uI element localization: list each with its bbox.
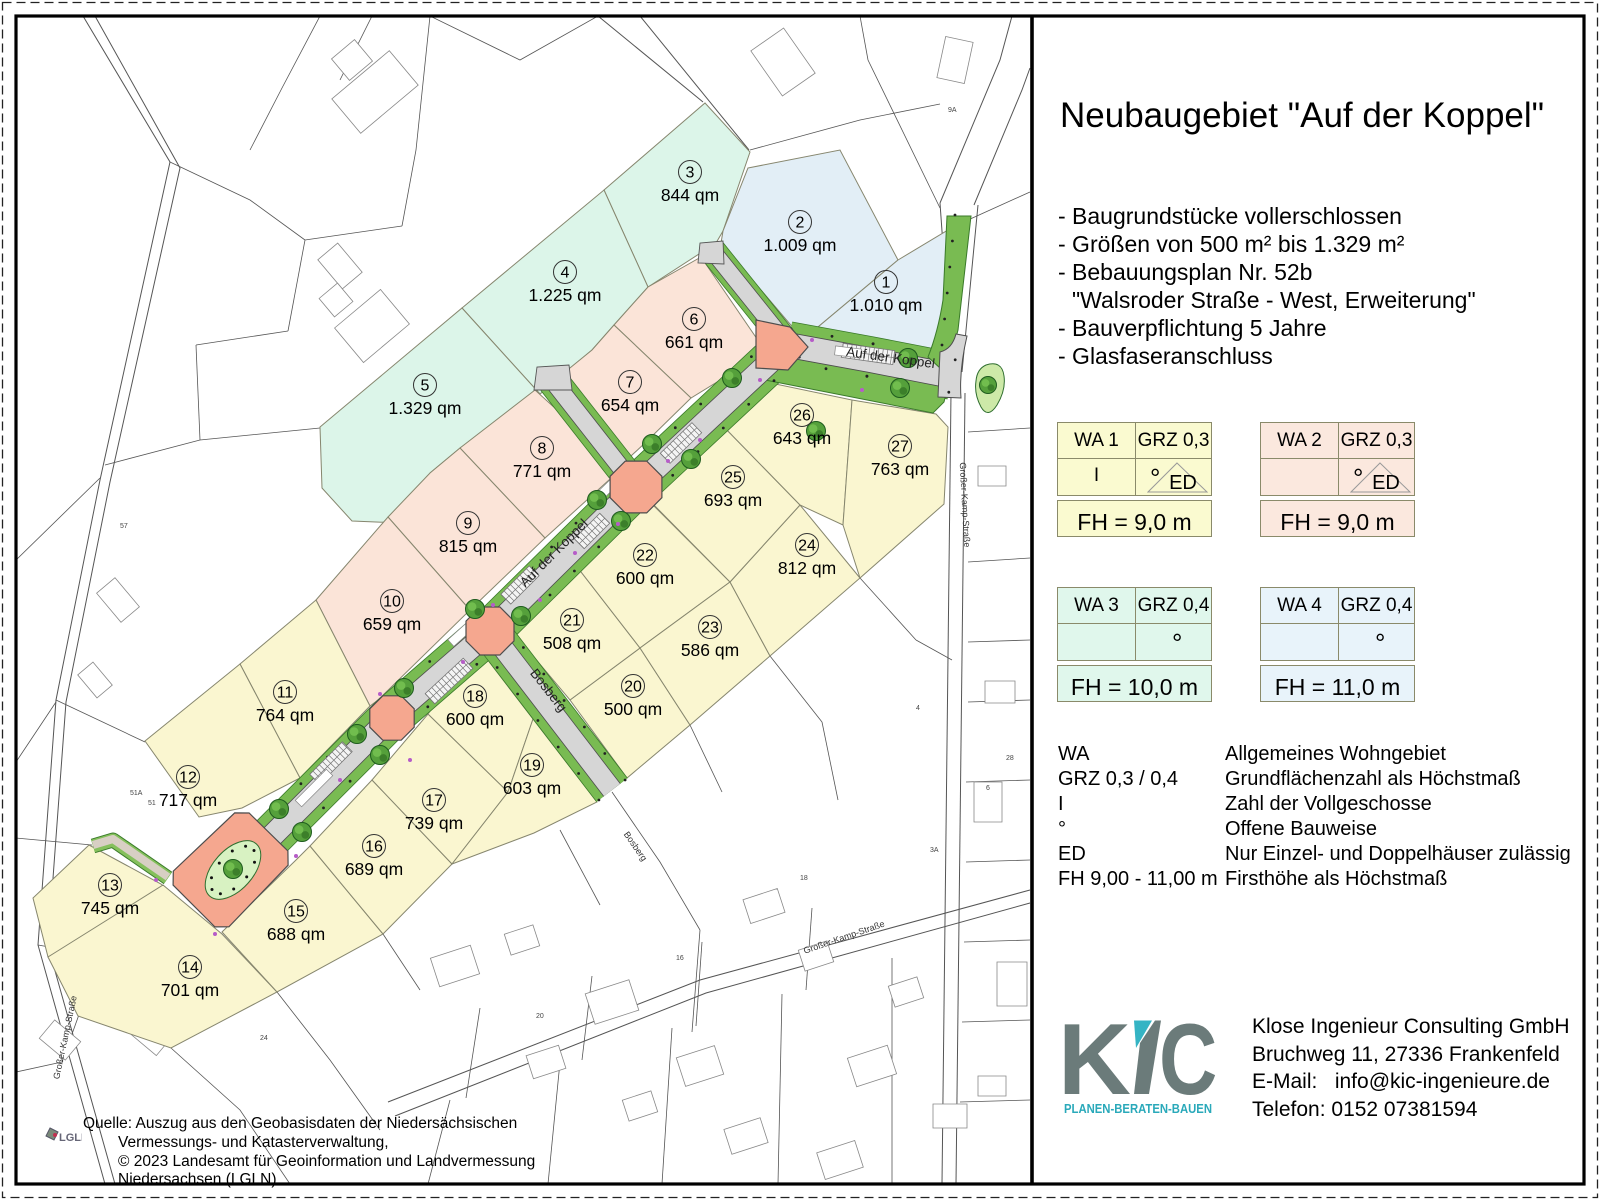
svg-text:13: 13	[101, 878, 119, 895]
svg-text:10: 10	[383, 594, 401, 611]
svg-text:688 qm: 688 qm	[267, 924, 325, 944]
svg-text:586 qm: 586 qm	[681, 640, 739, 660]
svg-text:19: 19	[523, 758, 541, 775]
svg-text:51: 51	[148, 800, 156, 807]
svg-text:16: 16	[365, 839, 383, 856]
svg-text:693 qm: 693 qm	[704, 490, 762, 510]
svg-text:57: 57	[120, 523, 128, 530]
svg-text:844 qm: 844 qm	[661, 185, 719, 205]
svg-text:K: K	[1062, 1004, 1131, 1116]
svg-text:771 qm: 771 qm	[513, 461, 571, 481]
svg-text:815 qm: 815 qm	[439, 536, 497, 556]
svg-text:51A: 51A	[130, 790, 143, 797]
svg-text:659 qm: 659 qm	[363, 614, 421, 634]
svg-text:7: 7	[626, 375, 635, 392]
svg-text:25: 25	[724, 470, 742, 487]
svg-text:28: 28	[1006, 755, 1014, 762]
svg-text:764 qm: 764 qm	[256, 705, 314, 725]
svg-text:717 qm: 717 qm	[159, 790, 217, 810]
svg-text:600 qm: 600 qm	[446, 709, 504, 729]
svg-text:689 qm: 689 qm	[345, 859, 403, 879]
svg-text:23: 23	[701, 620, 719, 637]
svg-text:9A: 9A	[948, 107, 957, 114]
svg-text:18: 18	[800, 875, 808, 882]
svg-text:20: 20	[624, 679, 642, 696]
svg-text:661 qm: 661 qm	[665, 332, 723, 352]
svg-text:C: C	[1159, 1003, 1217, 1116]
svg-text:763 qm: 763 qm	[871, 459, 929, 479]
svg-text:15: 15	[287, 904, 305, 921]
svg-text:20: 20	[536, 1013, 544, 1020]
svg-text:3A: 3A	[930, 847, 939, 854]
svg-text:16: 16	[676, 955, 684, 962]
svg-text:500 qm: 500 qm	[604, 699, 662, 719]
svg-text:6: 6	[690, 312, 699, 329]
svg-text:643 qm: 643 qm	[773, 428, 831, 448]
svg-text:11: 11	[277, 685, 294, 702]
svg-text:ED: ED	[1169, 472, 1197, 494]
svg-text:745 qm: 745 qm	[81, 898, 139, 918]
svg-text:812 qm: 812 qm	[778, 558, 836, 578]
svg-text:14: 14	[181, 960, 199, 977]
svg-text:701 qm: 701 qm	[161, 980, 219, 1000]
svg-text:1.329 qm: 1.329 qm	[389, 398, 462, 418]
svg-text:6: 6	[986, 785, 990, 792]
svg-text:739 qm: 739 qm	[405, 813, 463, 833]
svg-text:24: 24	[260, 1035, 268, 1042]
svg-text:22: 22	[636, 548, 654, 565]
svg-text:654 qm: 654 qm	[601, 395, 659, 415]
svg-text:1.225 qm: 1.225 qm	[529, 285, 602, 305]
svg-text:4: 4	[561, 265, 570, 282]
svg-text:3: 3	[686, 165, 695, 182]
svg-text:12: 12	[179, 770, 197, 787]
svg-text:26: 26	[793, 408, 811, 425]
svg-text:18: 18	[466, 689, 484, 706]
svg-text:21: 21	[563, 613, 581, 630]
svg-text:1: 1	[882, 275, 891, 292]
svg-text:1.009 qm: 1.009 qm	[764, 235, 837, 255]
svg-text:8: 8	[538, 441, 547, 458]
svg-text:LGLN: LGLN	[59, 1132, 82, 1144]
svg-text:603 qm: 603 qm	[503, 778, 561, 798]
svg-text:2: 2	[796, 215, 805, 232]
svg-text:PLANEN-BERATEN-BAUEN: PLANEN-BERATEN-BAUEN	[1064, 1101, 1212, 1116]
svg-text:1.010 qm: 1.010 qm	[850, 295, 923, 315]
svg-text:27: 27	[891, 439, 909, 456]
svg-text:ED: ED	[1372, 472, 1400, 494]
svg-text:508 qm: 508 qm	[543, 633, 601, 653]
svg-text:24: 24	[798, 538, 816, 555]
svg-text:4: 4	[916, 705, 920, 712]
svg-text:9: 9	[464, 516, 473, 533]
svg-text:600 qm: 600 qm	[616, 568, 674, 588]
svg-text:5: 5	[421, 378, 430, 395]
svg-text:17: 17	[425, 793, 443, 810]
